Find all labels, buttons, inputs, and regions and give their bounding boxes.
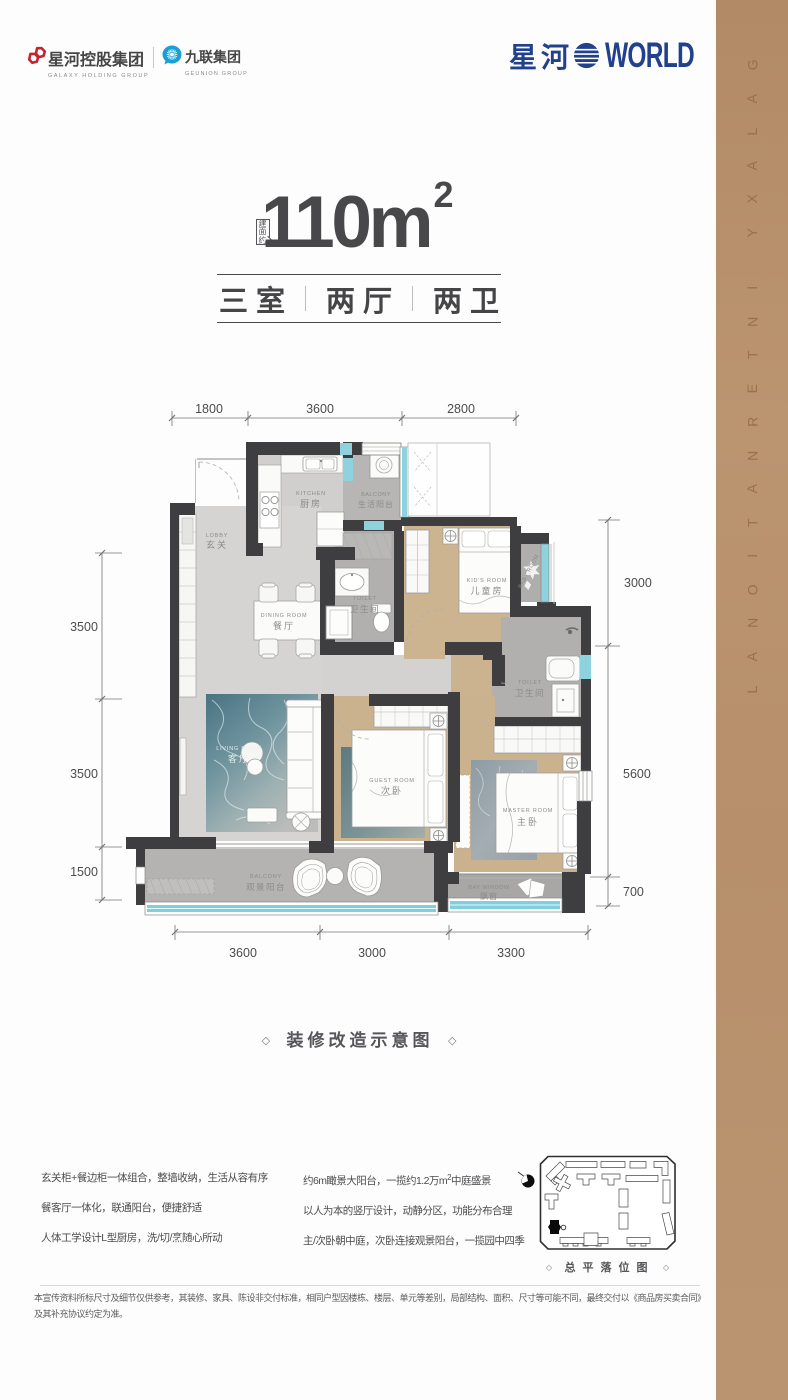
svg-text:BALCONY: BALCONY (361, 492, 391, 498)
svg-text:BALCONY: BALCONY (250, 874, 282, 880)
svg-text:3000: 3000 (358, 946, 386, 960)
svg-text:1500: 1500 (70, 865, 98, 879)
svg-text:主卧: 主卧 (517, 816, 539, 827)
svg-text:5600: 5600 (623, 767, 651, 781)
svg-text:LIVING ROOM: LIVING ROOM (216, 746, 261, 752)
svg-text:3600: 3600 (306, 402, 334, 416)
svg-text:观景阳台: 观景阳台 (246, 882, 286, 892)
svg-text:卫生间: 卫生间 (350, 604, 380, 614)
svg-text:餐厅: 餐厅 (273, 620, 295, 631)
svg-text:LOBBY: LOBBY (206, 533, 228, 539)
svg-text:1800: 1800 (195, 402, 223, 416)
svg-text:3600: 3600 (229, 946, 257, 960)
svg-text:3500: 3500 (70, 767, 98, 781)
svg-text:700: 700 (623, 885, 644, 899)
svg-text:KITCHEN: KITCHEN (296, 491, 326, 497)
svg-text:2800: 2800 (447, 402, 475, 416)
svg-text:TOILET: TOILET (353, 596, 377, 602)
svg-text:玄关: 玄关 (206, 539, 228, 550)
svg-text:3300: 3300 (497, 946, 525, 960)
svg-text:BAY WINDOW: BAY WINDOW (468, 885, 509, 891)
svg-text:生活阳台: 生活阳台 (358, 499, 394, 509)
svg-text:厨房: 厨房 (300, 498, 322, 509)
svg-text:DINING ROOM: DINING ROOM (261, 613, 308, 619)
svg-text:GUEST ROOM: GUEST ROOM (369, 778, 415, 784)
svg-text:客厅: 客厅 (228, 753, 250, 764)
svg-text:儿童房: 儿童房 (470, 585, 503, 596)
svg-text:卫生间: 卫生间 (515, 688, 545, 698)
svg-text:KID'S ROOM: KID'S ROOM (467, 578, 508, 584)
svg-text:3500: 3500 (70, 620, 98, 634)
svg-text:TOILET: TOILET (518, 680, 542, 686)
svg-text:飘窗: 飘窗 (480, 891, 498, 901)
svg-text:3000: 3000 (624, 576, 652, 590)
svg-text:次卧: 次卧 (381, 785, 403, 796)
svg-text:MASTER ROOM: MASTER ROOM (503, 808, 553, 814)
